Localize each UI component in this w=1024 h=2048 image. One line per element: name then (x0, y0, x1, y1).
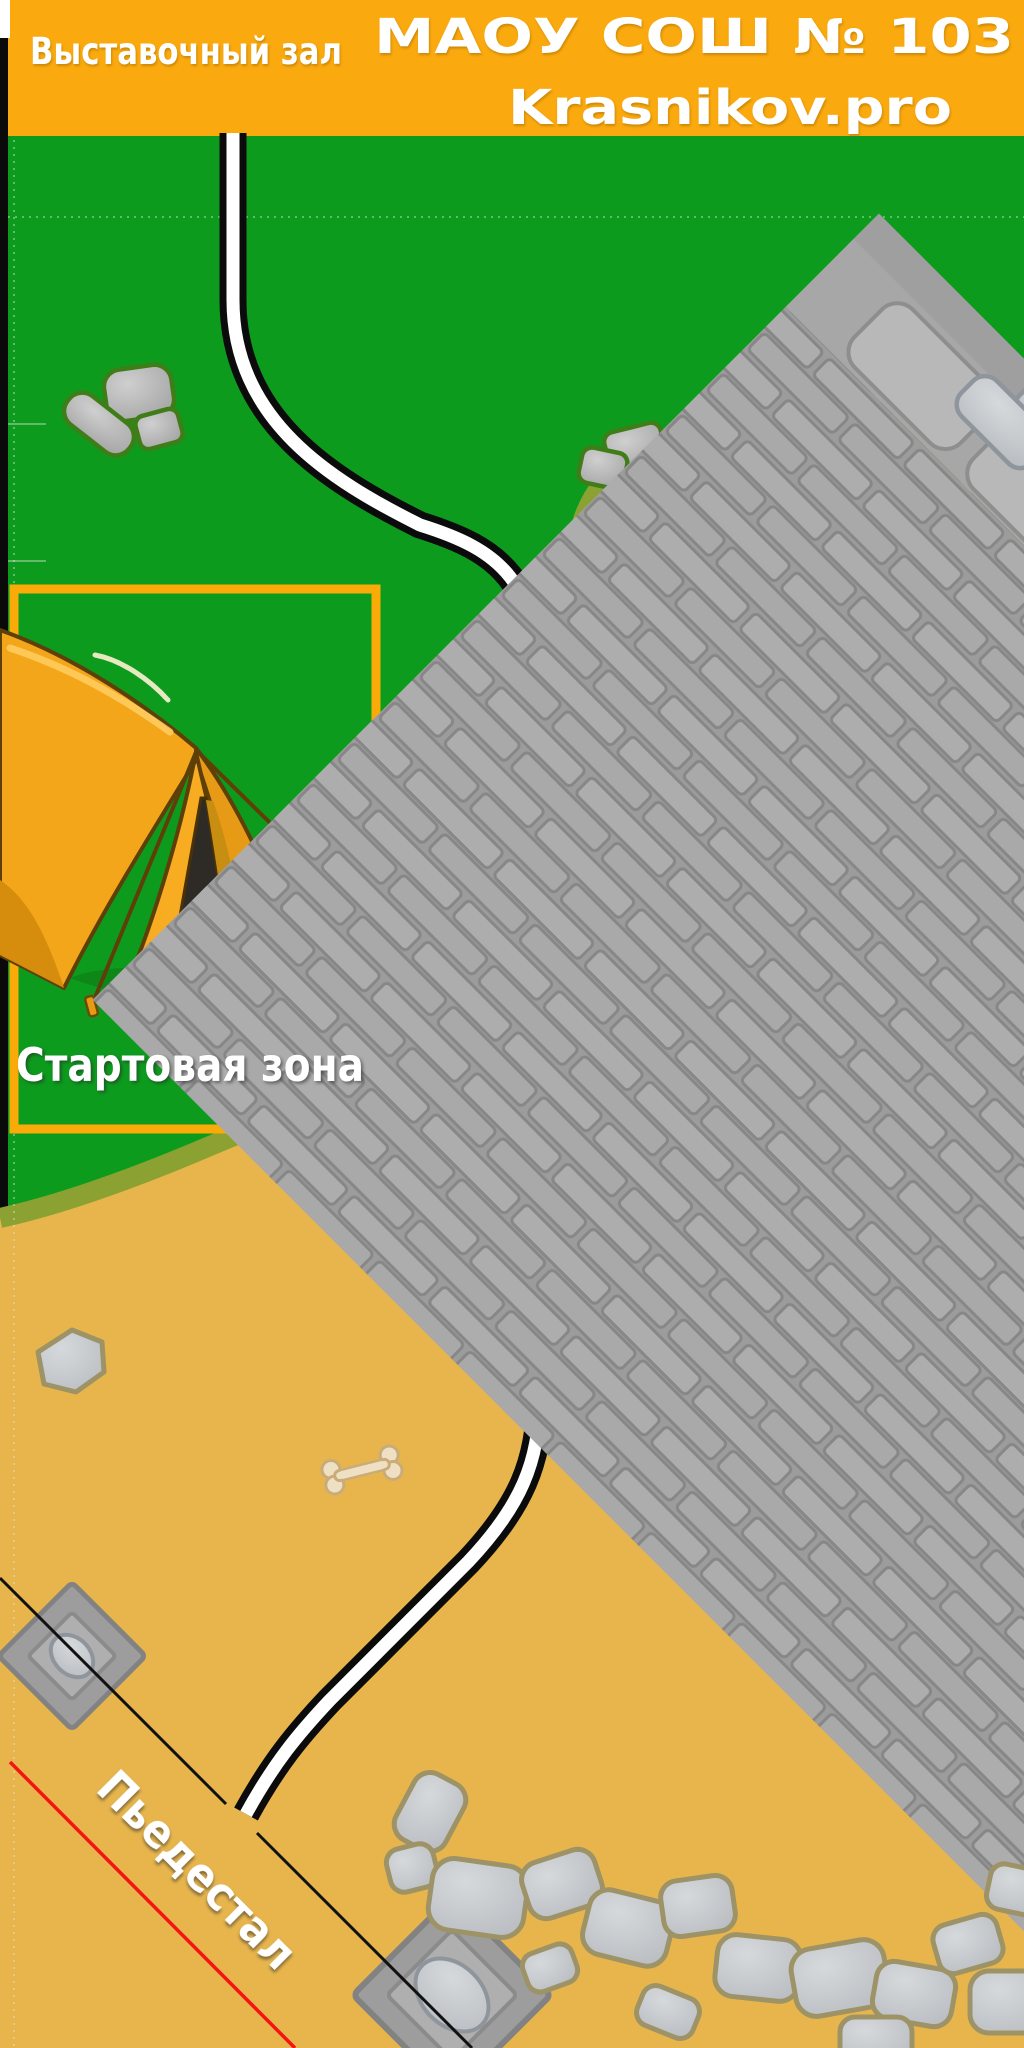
map-left-edge (0, 0, 8, 1230)
header-bar: Выставочный зал МАОУ СОШ № 103 Krasnikov… (0, 0, 1024, 136)
map-canvas: Выставочный зал МАОУ СОШ № 103 Krasnikov… (0, 0, 1024, 2048)
exhibition-hall-map: Выставочный зал МАОУ СОШ № 103 Krasnikov… (0, 0, 1024, 2048)
site-link: Krasnikov.pro (508, 80, 952, 136)
start-zone-label: Стартовая зона (16, 1038, 364, 1092)
page-title: Выставочный зал (30, 30, 342, 73)
school-title: МАОУ СОШ № 103 (374, 9, 1014, 65)
page-corner (0, 0, 10, 38)
